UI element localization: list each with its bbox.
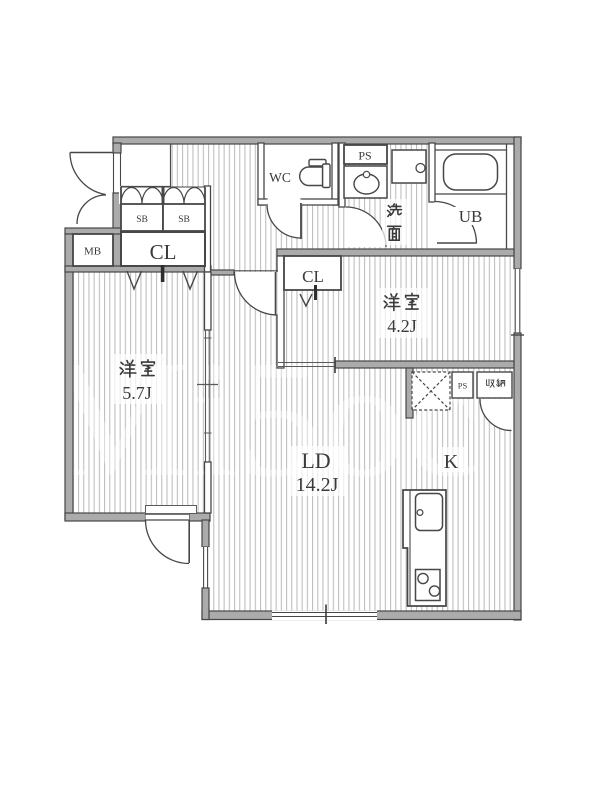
svg-text:K: K [444, 451, 459, 473]
svg-text:WC: WC [269, 170, 291, 185]
svg-text:SB: SB [178, 215, 190, 225]
svg-text:LD: LD [301, 448, 330, 473]
svg-text:CL: CL [302, 267, 324, 286]
svg-text:MB: MB [84, 246, 101, 258]
svg-text:UB: UB [459, 207, 483, 226]
svg-text:Mi5oc: Mi5oc [42, 326, 481, 512]
svg-text:5.7J: 5.7J [122, 383, 152, 403]
svg-text:PS: PS [358, 149, 371, 163]
svg-text:14.2J: 14.2J [296, 474, 339, 496]
svg-text:CL: CL [150, 240, 177, 264]
svg-text:PS: PS [458, 381, 468, 391]
svg-text:4.2J: 4.2J [387, 316, 417, 336]
svg-text:SB: SB [136, 215, 148, 225]
